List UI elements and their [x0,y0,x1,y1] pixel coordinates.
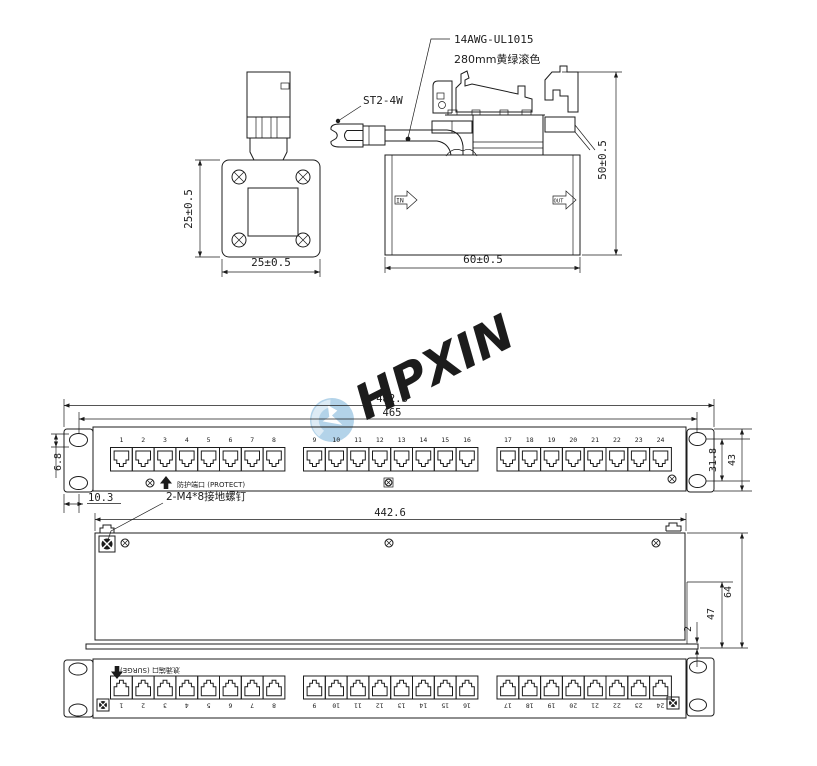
dim-module-height: 25±0.5 [182,160,220,257]
rj45-port [606,676,628,699]
rj45-port [111,448,133,472]
ear-slot [70,434,88,447]
rear-body [95,533,685,640]
protect-label: 防护端口 (PROTECT) [177,480,245,489]
port-number: 7 [250,701,254,709]
ground-screw-icon [99,536,115,552]
port-number: 14 [419,701,427,709]
dim-body-width: 442.6 [95,507,686,531]
rj45-port [154,448,176,472]
port-number: 8 [272,701,276,709]
port-number: 11 [354,701,362,709]
rj45-port [628,448,650,472]
port-number: 12 [376,701,384,709]
wire-spec-line2: 280mm黄绿滚色 [454,52,540,66]
port-number: 4 [185,436,189,444]
dim-label: 482.6 [376,393,408,405]
rj45-port [541,676,563,699]
port-number: 21 [591,436,599,444]
rj45-port [198,676,220,699]
screw-icon [384,478,393,487]
rj45-port [456,676,478,699]
terminal-slot-block [247,117,290,138]
dim-label: 6.8 [53,453,64,471]
panel-rear-view: 2-M4*8接地螺钉 442.6 [86,490,748,667]
in-arrow-icon: IN [395,191,417,209]
rj45-port [413,676,435,699]
rj45-port [347,676,369,699]
port-number: 1 [119,701,123,709]
port-number: 19 [548,701,556,709]
out-label: OUT [554,199,565,205]
dim-side-height: 50±0.5 [562,72,622,255]
rj45-port [584,676,606,699]
rj45-port [220,448,242,472]
port-number: 20 [569,436,577,444]
ground-screw-label: 2-M4*8接地螺钉 [166,490,247,503]
ear-slot [70,477,88,490]
rj45-port [434,676,456,699]
rj45-port [263,676,285,699]
corner-screw-icon [232,170,246,184]
port-number: 4 [185,701,189,709]
engineering-drawing: HPXIN 25±0.5 [0,0,817,766]
port-number: 17 [504,436,512,444]
port-number: 10 [332,436,340,444]
rj45-port [263,448,285,472]
rear-bottom-lip [86,644,698,649]
up-arrow-icon [160,476,172,489]
rj45-port [241,448,263,472]
terminal-tab [281,83,289,89]
port-number: 23 [635,701,643,709]
dim-label: 50±0.5 [596,140,609,180]
port-number: 6 [228,436,232,444]
port-number: 15 [441,436,449,444]
in-label: IN [396,197,404,205]
port-number: 16 [463,436,471,444]
corner-screw-icon [296,170,310,184]
port-number: 12 [376,436,384,444]
port-number: 14 [419,436,427,444]
dim-side-width: 60±0.5 [385,253,580,273]
clip-base-center [473,115,543,155]
ear-slot [69,663,87,675]
port-number: 24 [657,436,665,444]
rj45-port [132,676,154,699]
module-front-view: 25±0.5 25±0.5 [182,72,320,277]
out-arrow-icon: OUT [553,191,576,209]
rj45-port [497,676,519,699]
fork-terminal [331,124,385,147]
rj45-port [391,448,413,472]
dim-hole-offset: 10.3 [64,492,121,513]
port-number: 2 [141,436,145,444]
dim-module-width: 25±0.5 [222,256,320,277]
port-number: 9 [312,436,316,444]
rj45-port [650,448,672,472]
port-number: 22 [613,436,621,444]
mounting-ear-right [687,658,714,716]
rj45-port [584,448,606,472]
dim-total-depth: 64 [687,533,748,648]
port-number: 17 [504,701,512,709]
port-number: 22 [613,701,621,709]
rj45-port [347,448,369,472]
rj45-port [369,448,391,472]
ear-slot [69,704,87,716]
rj45-port [325,676,347,699]
din-rail-clip [432,66,595,155]
module-window [248,188,298,236]
surge-row: 浪涌端口 (SURGE) [111,666,180,679]
terminal-ferrule [363,126,385,145]
port-number: 16 [463,701,471,709]
corner-screw-icon [232,233,246,247]
port-number: 5 [207,436,211,444]
front-port-row: 123456789101112131415161718192021222324 [111,436,672,471]
port-number: 21 [591,701,599,709]
ear-slot [690,661,707,673]
rj45-port [606,448,628,472]
dim-panel-height: 43 [714,429,752,491]
port-number: 5 [207,701,211,709]
watermark-logo: HPXIN [300,304,524,455]
dim-label: 60±0.5 [463,253,503,266]
dim-label: 25±0.5 [182,189,195,229]
rj45-port [650,676,672,699]
rj45-port [241,676,263,699]
port-number: 8 [272,436,276,444]
port-number: 7 [250,436,254,444]
mount-tab [100,525,114,533]
port-number: 13 [398,701,406,709]
rj45-port [413,448,435,472]
rj45-port [325,448,347,472]
screw-icon [121,539,129,547]
dim-label: 10.3 [88,492,113,504]
terminal-upper-block [247,72,290,117]
port-number: 3 [163,701,167,709]
panel-bottom-view: 浪涌端口 (SURGE) 123456789101112131415161718… [64,658,714,718]
wire-spec-line1: 14AWG-UL1015 [454,33,533,46]
port-number: 15 [441,701,449,709]
module-side-body [385,155,580,255]
port-number: 9 [312,701,316,709]
rj45-port [198,448,220,472]
dim-label: 43 [727,454,738,466]
clip-base-right [545,117,575,132]
dim-slot-height: 6.8 [51,434,69,478]
watermark-text: HPXIN [346,304,523,431]
port-number: 20 [569,701,577,709]
rj45-port [176,448,198,472]
mounting-ear-left [64,429,93,492]
corner-screw-icon [296,233,310,247]
port-number: 13 [398,436,406,444]
drawing-page: HPXIN 25±0.5 [0,0,817,766]
bottom-port-row: 123456789101112131415161718192021222324 [111,676,672,709]
dim-label: 465 [383,407,402,419]
rj45-port [111,676,133,699]
port-number: 3 [163,436,167,444]
terminal-label: ST2-4W [363,94,403,107]
rj45-port [562,448,584,472]
port-number: 18 [526,436,534,444]
surge-label: 浪涌端口 (SURGE) [120,666,180,675]
rj45-port [304,676,326,699]
rj45-port [456,448,478,472]
rj45-port [220,676,242,699]
rj45-port [541,448,563,472]
rj45-port [519,676,541,699]
port-number: 18 [526,701,534,709]
module-side-view: IN OUT [331,33,622,273]
terminal-callout: ST2-4W [336,94,403,123]
rj45-port [562,676,584,699]
dim-label: 2 [683,626,694,632]
dim-label: 442.6 [374,507,406,519]
terminal-neck [250,138,287,160]
dim-label: 31.8 [708,448,719,472]
port-number: 10 [332,701,340,709]
mount-tab [666,523,681,531]
port-number: 23 [635,436,643,444]
port-number: 24 [657,701,665,709]
ear-slot [689,433,706,446]
ground-wire [385,130,477,156]
dim-label: 25±0.5 [251,256,291,269]
mounting-ear-left [64,660,93,717]
ear-slot [689,475,706,488]
rj45-port [132,448,154,472]
protect-row: 防护端口 (PROTECT) [146,475,676,489]
screw-icon [385,539,393,547]
rj45-port [628,676,650,699]
screw-icon [652,539,660,547]
rj45-port [519,448,541,472]
rj45-port [391,676,413,699]
rj45-port [434,448,456,472]
rj45-port [154,676,176,699]
port-number: 19 [548,436,556,444]
port-number: 11 [354,436,362,444]
rj45-port [369,676,391,699]
port-number: 2 [141,701,145,709]
rj45-port [497,448,519,472]
dim-label: 47 [706,608,717,620]
dim-label: 64 [723,586,734,598]
ear-slot [690,699,707,711]
port-number: 6 [228,701,232,709]
port-number: 1 [119,436,123,444]
rj45-port [176,676,198,699]
screw-icon [146,479,154,487]
ground-screw-icon [97,699,109,711]
rj45-port [304,448,326,472]
screw-icon [668,475,676,483]
